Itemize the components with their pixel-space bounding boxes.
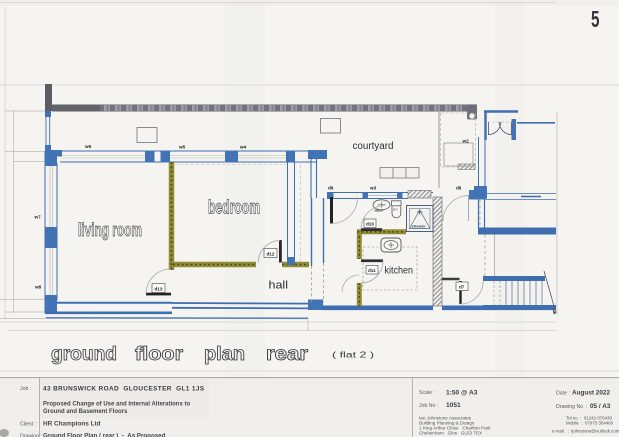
svg-text:Client :: Client : bbox=[20, 422, 36, 428]
svg-text:floor: floor bbox=[135, 344, 184, 365]
svg-text:Job :: Job : bbox=[20, 386, 31, 392]
svg-text:e-mail : ijohnstone@outlook: e-mail : ijohnstone@outlook.com bbox=[552, 429, 619, 434]
svg-text:d7: d7 bbox=[459, 285, 465, 290]
svg-text:1051: 1051 bbox=[446, 402, 461, 409]
svg-text:plan: plan bbox=[204, 344, 245, 365]
svg-text:Proposed Change of Use and Int: Proposed Change of Use and Internal Alte… bbox=[43, 402, 190, 408]
svg-text:( flat 2 ): ( flat 2 ) bbox=[332, 351, 375, 360]
svg-text:5: 5 bbox=[591, 6, 600, 32]
svg-text:d11: d11 bbox=[368, 268, 376, 273]
svg-text:d9: d9 bbox=[328, 186, 334, 191]
svg-text:w3: w3 bbox=[369, 186, 377, 191]
svg-text:bedroom: bedroom bbox=[208, 198, 260, 219]
svg-text:05 / A3: 05 / A3 bbox=[590, 403, 611, 410]
svg-text:Cheltenham Glos GL53 7EX: Cheltenham Glos GL53 7EX bbox=[419, 431, 482, 436]
svg-text:1:50 @ A3: 1:50 @ A3 bbox=[446, 390, 478, 397]
svg-text:Mobile : 07973 304460: Mobile : 07973 304460 bbox=[566, 421, 614, 426]
svg-text:w.c: w.c bbox=[393, 208, 398, 212]
svg-text:Drawing No :: Drawing No : bbox=[556, 404, 587, 410]
svg-text:w5: w5 bbox=[178, 145, 186, 150]
svg-text:ground: ground bbox=[51, 344, 117, 365]
svg-text:Drawing :: Drawing : bbox=[20, 434, 42, 437]
svg-text:wash: wash bbox=[375, 209, 385, 213]
svg-text:Job No :: Job No : bbox=[419, 403, 438, 409]
svg-text:HR Champions Ltd: HR Champions Ltd bbox=[43, 421, 101, 428]
svg-text:w8: w8 bbox=[34, 285, 42, 290]
svg-text:w4: w4 bbox=[239, 145, 247, 150]
svg-text:rear: rear bbox=[266, 344, 309, 365]
svg-text:Ground and Basement Floors: Ground and Basement Floors bbox=[43, 409, 128, 415]
svg-text:w7: w7 bbox=[34, 215, 42, 220]
svg-text:d12: d12 bbox=[267, 252, 275, 257]
svg-text:d13: d13 bbox=[155, 287, 163, 292]
svg-text:kitchen: kitchen bbox=[385, 266, 414, 277]
svg-text:Date :: Date : bbox=[556, 391, 570, 397]
svg-text:hall: hall bbox=[269, 280, 289, 292]
svg-text:living room: living room bbox=[78, 220, 142, 240]
svg-text:Scale :: Scale : bbox=[419, 390, 435, 396]
svg-text:d8: d8 bbox=[456, 186, 462, 191]
svg-text:August 2022: August 2022 bbox=[572, 390, 610, 397]
svg-text:Ground Floor Plan ( rear ) -: Ground Floor Plan ( rear ) - As Proposed bbox=[43, 433, 166, 437]
svg-text:d10: d10 bbox=[366, 222, 374, 227]
svg-text:43 BRUNSWICK ROAD GLOUCESTER: 43 BRUNSWICK ROAD GLOUCESTER GL1 1JS bbox=[43, 386, 205, 393]
svg-text:w2: w2 bbox=[462, 139, 470, 144]
svg-text:courtyard: courtyard bbox=[353, 141, 394, 152]
svg-text:shower: shower bbox=[412, 224, 426, 229]
svg-text:w6: w6 bbox=[84, 144, 92, 149]
